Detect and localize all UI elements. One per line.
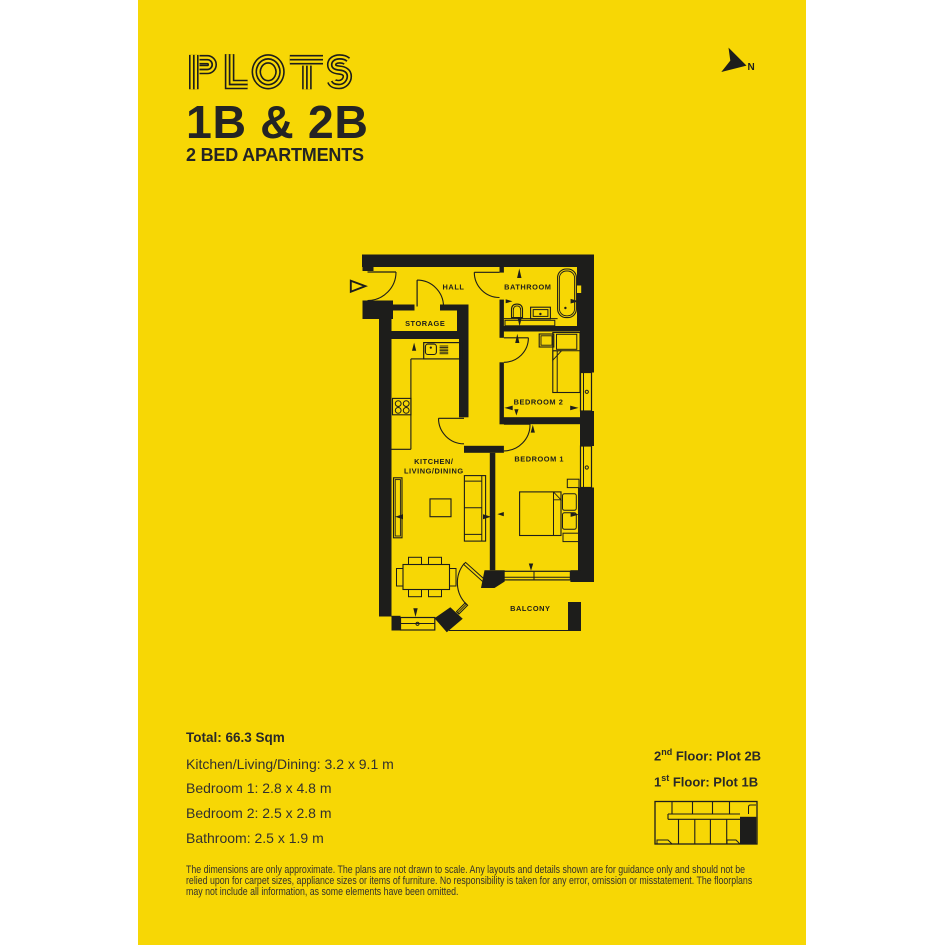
svg-text:BATHROOM: BATHROOM bbox=[504, 283, 551, 292]
svg-text:BALCONY: BALCONY bbox=[510, 604, 550, 613]
svg-text:N: N bbox=[748, 62, 755, 73]
svg-text:LIVING/DINING: LIVING/DINING bbox=[404, 466, 464, 475]
svg-text:STORAGE: STORAGE bbox=[405, 319, 445, 328]
svg-text:HALL: HALL bbox=[443, 283, 465, 292]
svg-text:BEDROOM 1: BEDROOM 1 bbox=[514, 455, 564, 464]
svg-text:KITCHEN/: KITCHEN/ bbox=[414, 457, 453, 466]
svg-text:BEDROOM 2: BEDROOM 2 bbox=[514, 397, 564, 406]
